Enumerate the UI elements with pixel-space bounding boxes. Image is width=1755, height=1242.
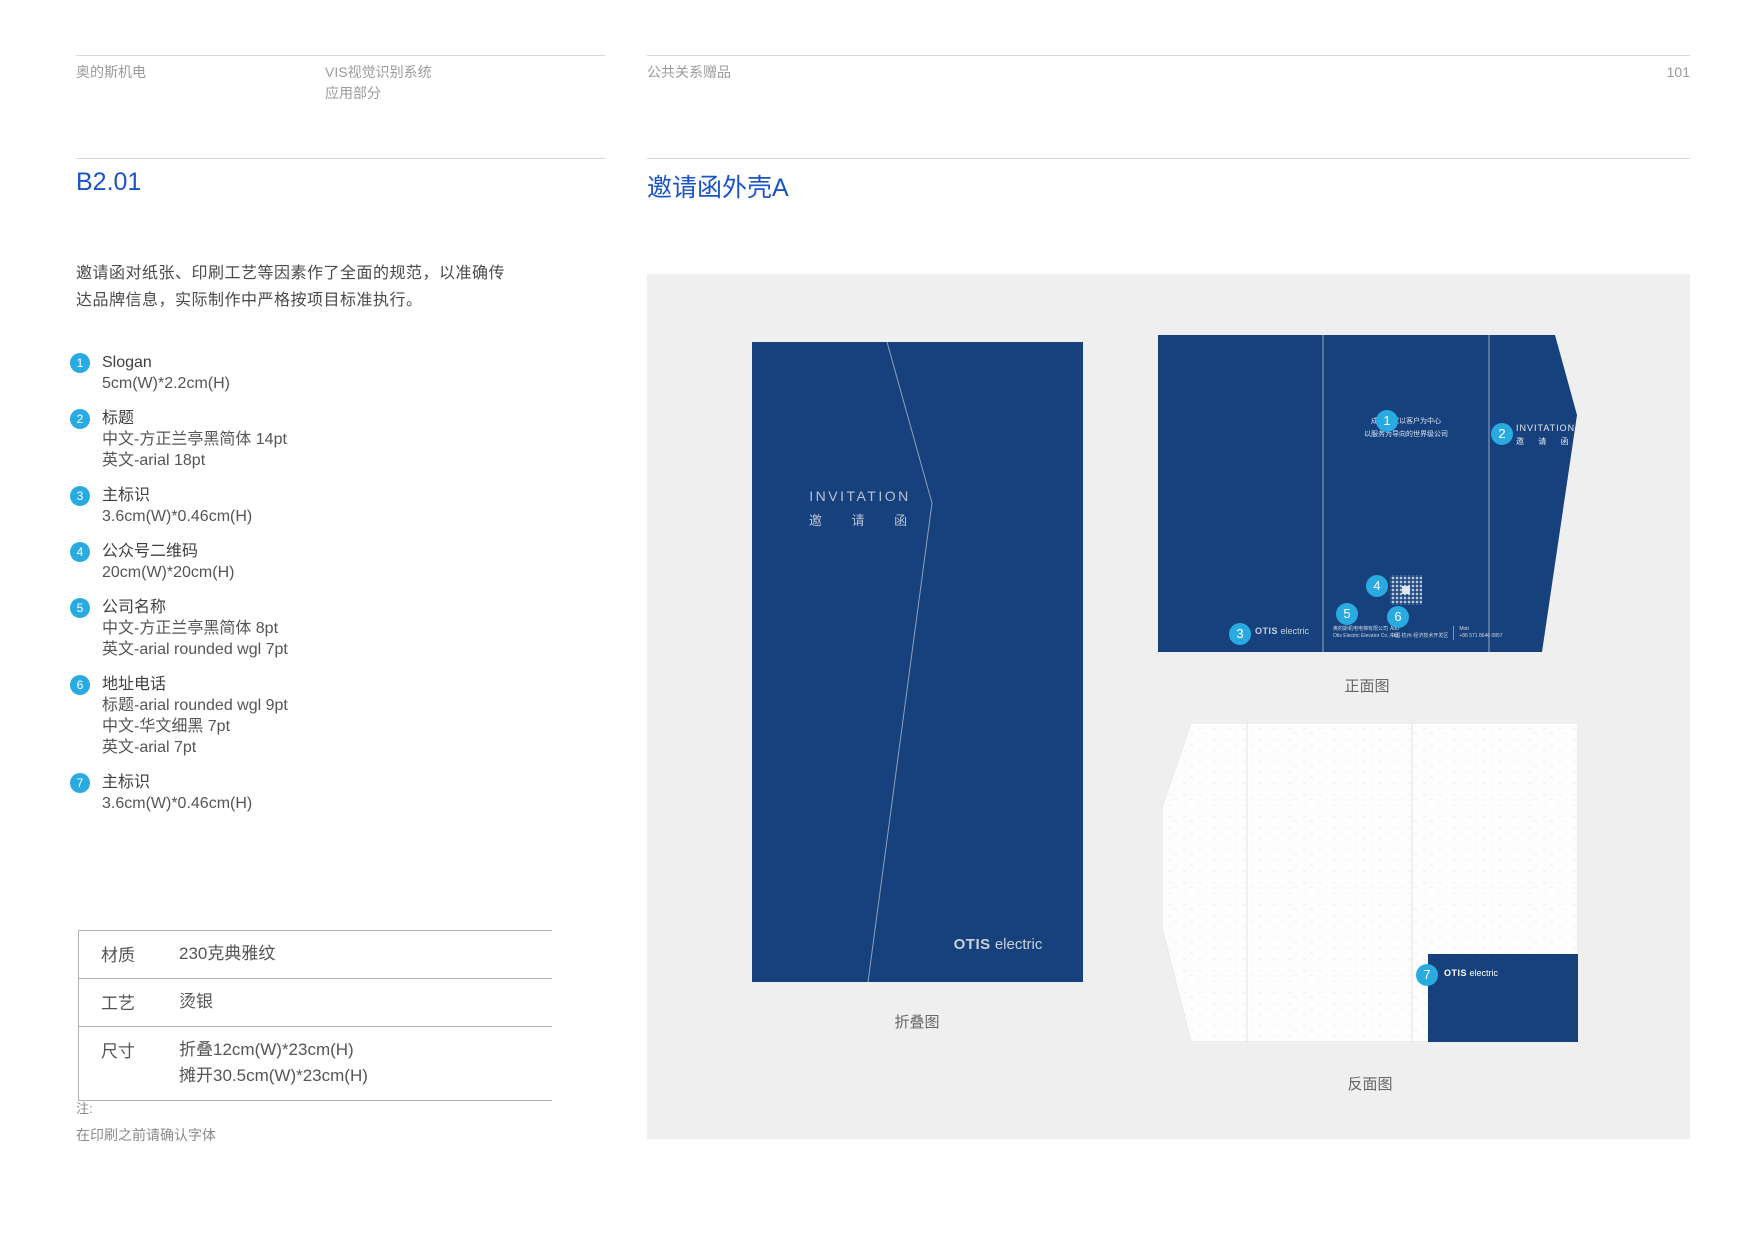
- list-item-6: 6 地址电话 标题-arial rounded wgl 9pt 中文-华文细黑 …: [70, 674, 550, 758]
- item-2-badge: 2: [70, 409, 90, 429]
- system-line1: VIS视觉识别系统: [325, 62, 432, 83]
- caption-front: 正面图: [1267, 675, 1467, 696]
- row-label: 尺寸: [101, 1037, 179, 1089]
- footnote-label: 注:: [76, 1096, 216, 1122]
- marker-7: 7: [1416, 964, 1438, 986]
- item-7-label: 主标识: [102, 772, 252, 793]
- marker-2: 2: [1491, 423, 1513, 445]
- marker-4: 4: [1366, 575, 1388, 597]
- section-name: 公共关系赠品: [647, 62, 731, 83]
- row-label: 材质: [101, 941, 179, 967]
- item-6-detail-3: 英文-arial 7pt: [102, 737, 288, 758]
- front-address-block: Add 中国·杭州·经济技术开发区 Mob +86 571 8646 0857: [1390, 626, 1508, 640]
- mobile-group: Mob +86 571 8646 0857: [1453, 626, 1507, 640]
- title-rule-right: [647, 158, 1690, 159]
- item-5-label: 公司名称: [102, 597, 288, 618]
- item-3-label: 主标识: [102, 485, 252, 506]
- item-5-detail-1: 中文-方正兰亭黑简体 8pt: [102, 618, 288, 639]
- qr-center: [1402, 586, 1410, 594]
- fold-line-graphic: [752, 342, 1083, 982]
- item-2-label: 标题: [102, 408, 287, 429]
- item-5-badge: 5: [70, 598, 90, 618]
- envelope-back-view: OTIS electric 7: [1162, 723, 1578, 1042]
- item-7-detail: 3.6cm(W)*0.46cm(H): [102, 793, 252, 814]
- envelope-folded-view: INVITATION 邀 请 函 OTIS electric: [752, 342, 1083, 982]
- item-6-label: 地址电话: [102, 674, 288, 695]
- table-row-size: 尺寸 折叠12cm(W)*23cm(H) 摊开30.5cm(W)*23cm(H): [79, 1026, 552, 1101]
- item-6-badge: 6: [70, 675, 90, 695]
- list-item-2: 2 标题 中文-方正兰亭黑简体 14pt 英文-arial 18pt: [70, 408, 550, 471]
- intro-line2: 达品牌信息，实际制作中严格按项目标准执行。: [76, 287, 505, 314]
- row-label: 工艺: [101, 989, 179, 1015]
- front-invitation-cn: 邀 请 函: [1516, 436, 1575, 447]
- table-row-material: 材质 230克典雅纹: [79, 930, 552, 978]
- item-2-detail-2: 英文-arial 18pt: [102, 450, 287, 471]
- vis-manual-page: 奥的斯机电 VIS视觉识别系统 应用部分 公共关系赠品 101 B2.01 邀请…: [0, 0, 1755, 1242]
- list-item-1: 1 Slogan 5cm(W)*2.2cm(H): [70, 352, 550, 394]
- header-rule-left: [76, 55, 605, 56]
- section-code: B2.01: [76, 168, 141, 197]
- marker-3: 3: [1229, 623, 1251, 645]
- list-item-4: 4 公众号二维码 20cm(W)*20cm(H): [70, 541, 550, 583]
- otis-electric-logo: OTIS electric: [898, 936, 1098, 953]
- marker-6: 6: [1387, 606, 1409, 628]
- diagram-panel: INVITATION 邀 请 函 OTIS electric 折叠图 成为一家以…: [647, 274, 1690, 1139]
- marker-1: 1: [1376, 410, 1398, 432]
- intro-paragraph: 邀请函对纸张、印刷工艺等因素作了全面的规范，以准确传 达品牌信息，实际制作中严格…: [76, 260, 505, 314]
- address-group: Add 中国·杭州·经济技术开发区: [1390, 626, 1453, 640]
- item-7-badge: 7: [70, 773, 90, 793]
- size-folded: 折叠12cm(W)*23cm(H): [179, 1037, 368, 1063]
- envelope-front-view: 成为一家以客户为中心 以服务为导向的世界级公司 1 2 INVITATION 邀…: [1158, 335, 1577, 652]
- item-1-label: Slogan: [102, 352, 230, 373]
- item-4-detail: 20cm(W)*20cm(H): [102, 562, 234, 583]
- list-item-3: 3 主标识 3.6cm(W)*0.46cm(H): [70, 485, 550, 527]
- item-6-detail-2: 中文-华文细黑 7pt: [102, 716, 288, 737]
- caption-folded: 折叠图: [817, 1011, 1017, 1032]
- list-item-7: 7 主标识 3.6cm(W)*0.46cm(H): [70, 772, 550, 814]
- address-text: 中国·杭州·经济技术开发区: [1390, 633, 1448, 640]
- footnote: 注: 在印刷之前请确认字体: [76, 1096, 216, 1148]
- qr-code: [1390, 575, 1422, 605]
- item-2-detail-1: 中文-方正兰亭黑简体 14pt: [102, 429, 287, 450]
- brand-name: 奥的斯机电: [76, 62, 146, 83]
- item-6-detail-1: 标题-arial rounded wgl 9pt: [102, 695, 288, 716]
- invitation-en-text: INVITATION: [760, 488, 960, 504]
- invitation-cn-text: 邀 请 函: [760, 510, 960, 529]
- item-3-detail: 3.6cm(W)*0.46cm(H): [102, 506, 252, 527]
- row-value: 折叠12cm(W)*23cm(H) 摊开30.5cm(W)*23cm(H): [179, 1037, 368, 1089]
- item-3-badge: 3: [70, 486, 90, 506]
- front-invitation-en: INVITATION: [1516, 423, 1575, 433]
- back-otis-logo: OTIS electric: [1444, 968, 1498, 978]
- back-logo-panel: OTIS electric: [1428, 954, 1578, 1042]
- item-5-detail-2: 英文-arial rounded wgl 7pt: [102, 639, 288, 660]
- spec-item-list: 1 Slogan 5cm(W)*2.2cm(H) 2 标题 中文-方正兰亭黑简体…: [70, 352, 550, 828]
- row-value: 230克典雅纹: [179, 941, 275, 967]
- item-1-badge: 1: [70, 353, 90, 373]
- item-4-label: 公众号二维码: [102, 541, 234, 562]
- front-otis-logo: OTIS electric: [1255, 626, 1309, 636]
- material-spec-table: 材质 230克典雅纹 工艺 烫银 尺寸 折叠12cm(W)*23cm(H) 摊开…: [78, 930, 552, 1101]
- item-4-badge: 4: [70, 542, 90, 562]
- footnote-text: 在印刷之前请确认字体: [76, 1122, 216, 1148]
- header-rule-right: [647, 55, 1690, 56]
- intro-line1: 邀请函对纸张、印刷工艺等因素作了全面的规范，以准确传: [76, 260, 505, 287]
- front-invitation: INVITATION 邀 请 函: [1516, 423, 1575, 447]
- front-shape-graphic: [1158, 335, 1577, 652]
- slogan-line2: 以服务为导向的世界级公司: [1326, 428, 1486, 441]
- mobile-text: +86 571 8646 0857: [1459, 633, 1502, 640]
- table-row-process: 工艺 烫银: [79, 978, 552, 1026]
- page-number: 101: [1590, 62, 1690, 83]
- system-line2: 应用部分: [325, 83, 432, 104]
- slogan-line1: 成为一家以客户为中心: [1326, 415, 1486, 428]
- marker-5: 5: [1336, 603, 1358, 625]
- page-title: 邀请函外壳A: [647, 168, 789, 204]
- item-1-detail: 5cm(W)*2.2cm(H): [102, 373, 230, 394]
- mobile-label: Mob: [1459, 626, 1502, 633]
- row-value: 烫银: [179, 989, 213, 1015]
- list-item-5: 5 公司名称 中文-方正兰亭黑简体 8pt 英文-arial rounded w…: [70, 597, 550, 660]
- system-name: VIS视觉识别系统 应用部分: [325, 62, 432, 104]
- size-open: 摊开30.5cm(W)*23cm(H): [179, 1063, 368, 1089]
- title-rule-left: [76, 158, 605, 159]
- caption-back: 反面图: [1270, 1073, 1470, 1094]
- front-slogan: 成为一家以客户为中心 以服务为导向的世界级公司: [1326, 415, 1486, 441]
